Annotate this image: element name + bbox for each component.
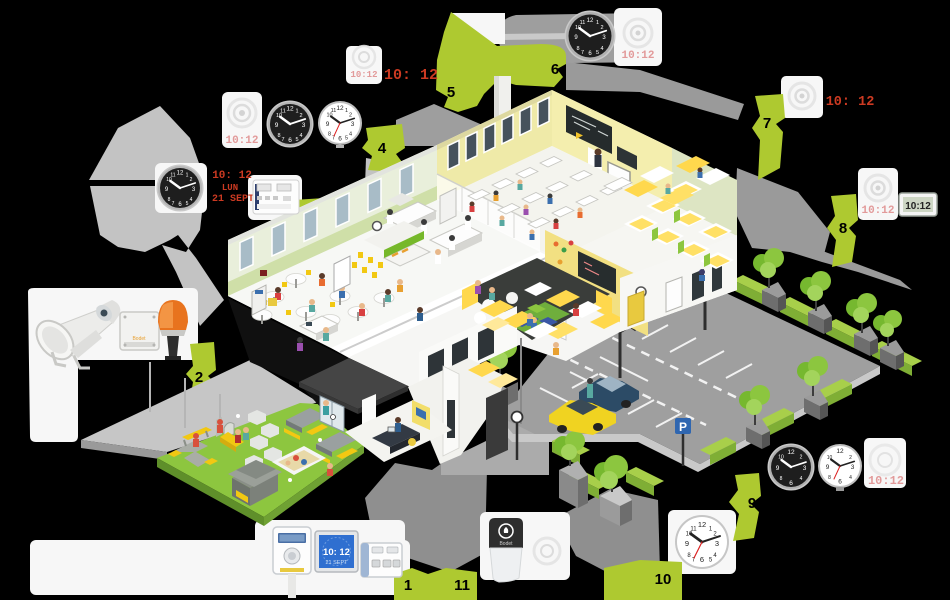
svg-text:10: 12: 10: 12: [384, 67, 438, 84]
svg-text:6: 6: [700, 555, 704, 564]
svg-text:LUN: LUN: [222, 183, 238, 193]
svg-text:6: 6: [338, 136, 342, 143]
svg-text:5: 5: [186, 201, 189, 207]
svg-text:10: 12: 10: 12: [323, 547, 350, 558]
svg-text:3: 3: [803, 465, 807, 472]
svg-text:5: 5: [345, 136, 348, 142]
svg-text:5: 5: [596, 50, 599, 56]
svg-text:9: 9: [748, 495, 756, 512]
svg-text:12: 12: [836, 448, 844, 455]
svg-text:8: 8: [780, 476, 783, 482]
svg-text:10:12: 10:12: [861, 205, 894, 217]
svg-text:21 SEPT: 21 SEPT: [325, 560, 348, 566]
svg-text:7: 7: [332, 136, 335, 142]
svg-text:1: 1: [186, 173, 189, 179]
svg-text:2: 2: [349, 113, 352, 119]
svg-text:9: 9: [275, 122, 279, 129]
svg-text:12: 12: [787, 449, 795, 456]
svg-text:4: 4: [800, 476, 803, 482]
svg-text:3: 3: [351, 121, 355, 128]
svg-text:7: 7: [281, 137, 284, 143]
svg-text:12: 12: [286, 106, 294, 113]
svg-text:8: 8: [839, 220, 847, 237]
svg-text:6: 6: [789, 480, 793, 487]
svg-text:11: 11: [170, 173, 175, 179]
svg-text:7: 7: [763, 115, 771, 132]
svg-text:1: 1: [345, 108, 348, 114]
svg-text:6: 6: [838, 479, 842, 486]
svg-text:4: 4: [849, 475, 852, 481]
svg-text:9: 9: [685, 539, 689, 548]
svg-text:6: 6: [288, 137, 292, 144]
svg-text:4: 4: [190, 197, 193, 203]
svg-text:10:12: 10:12: [225, 135, 258, 147]
svg-text:21 SEPT: 21 SEPT: [212, 194, 254, 205]
svg-text:8: 8: [168, 197, 171, 203]
svg-text:3: 3: [302, 122, 306, 129]
svg-text:3: 3: [715, 539, 719, 548]
svg-text:10: 12: 10: 12: [212, 170, 252, 182]
svg-text:1: 1: [404, 577, 412, 594]
svg-text:4: 4: [378, 140, 387, 157]
svg-text:6: 6: [551, 61, 559, 78]
svg-text:9: 9: [776, 465, 780, 472]
svg-text:10: 10: [655, 571, 672, 588]
svg-text:5: 5: [295, 137, 298, 143]
svg-text:12: 12: [587, 18, 594, 24]
svg-text:7: 7: [581, 50, 584, 56]
svg-text:2: 2: [299, 113, 302, 119]
svg-text:1: 1: [295, 109, 298, 115]
svg-text:12: 12: [698, 520, 706, 529]
svg-text:8: 8: [328, 132, 331, 138]
svg-text:Bodet: Bodet: [499, 541, 513, 547]
svg-text:2: 2: [600, 25, 603, 31]
svg-text:8: 8: [277, 133, 280, 139]
svg-text:2: 2: [190, 177, 193, 183]
svg-text:2: 2: [800, 455, 803, 461]
svg-text:10:12: 10:12: [905, 201, 931, 212]
svg-text:12: 12: [336, 105, 344, 112]
svg-text:11: 11: [454, 577, 470, 594]
svg-text:12: 12: [177, 171, 184, 177]
svg-text:10:12: 10:12: [868, 474, 904, 488]
svg-text:4: 4: [299, 133, 302, 139]
svg-text:2: 2: [849, 455, 852, 461]
svg-text:9: 9: [826, 464, 830, 471]
svg-text:9: 9: [326, 121, 330, 128]
svg-text:4: 4: [600, 46, 603, 52]
svg-text:Bodet: Bodet: [132, 336, 146, 342]
svg-text:3: 3: [851, 464, 855, 471]
svg-text:5: 5: [447, 84, 455, 101]
svg-text:10: 12: 10: 12: [826, 95, 875, 110]
svg-text:10:12: 10:12: [621, 50, 654, 62]
svg-text:P: P: [679, 420, 687, 434]
svg-text:8: 8: [576, 46, 579, 52]
svg-text:10:12: 10:12: [350, 70, 377, 80]
svg-text:4: 4: [349, 132, 352, 138]
svg-text:7: 7: [172, 201, 175, 207]
svg-text:8: 8: [828, 475, 831, 481]
svg-text:1: 1: [596, 20, 599, 26]
